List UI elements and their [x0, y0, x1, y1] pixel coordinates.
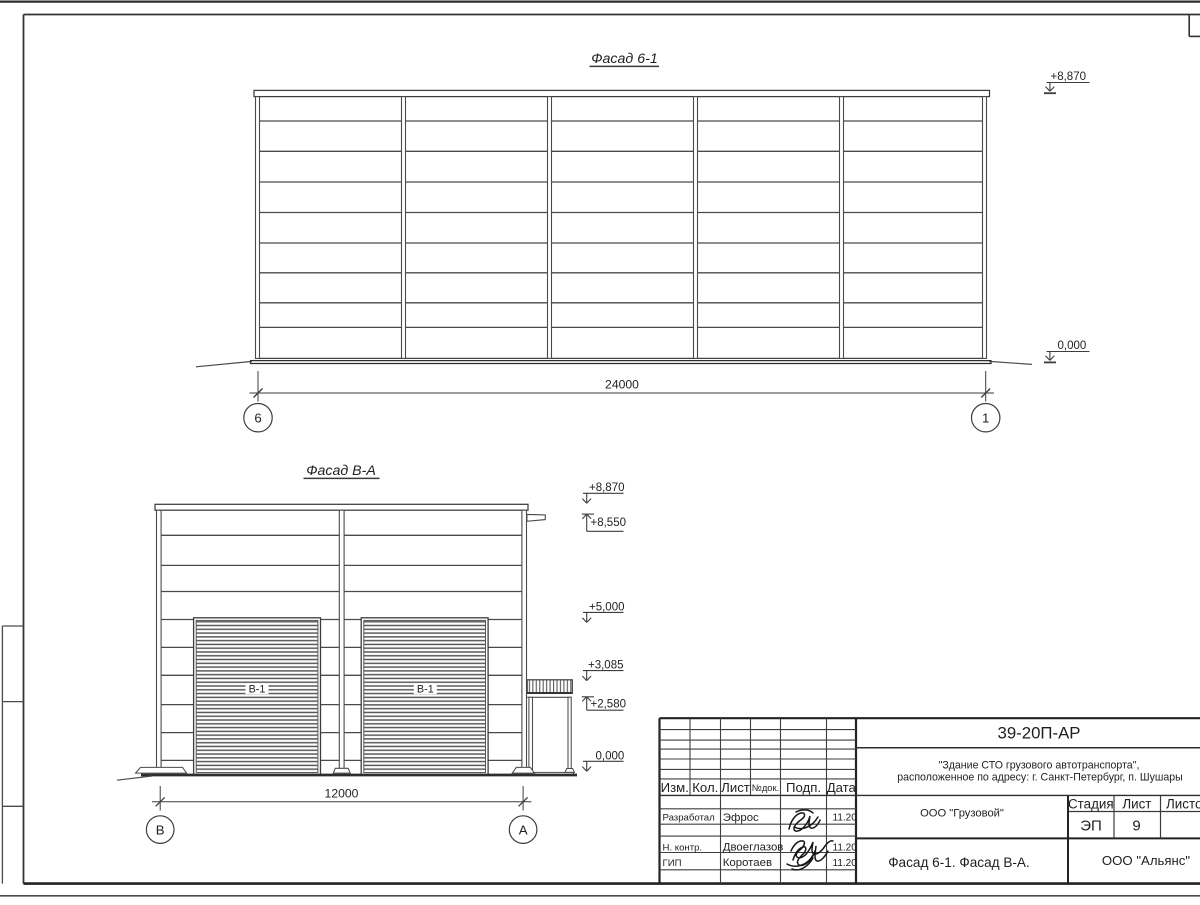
svg-text:Коротаев: Коротаев [723, 857, 772, 869]
svg-text:А: А [519, 822, 528, 837]
svg-text:№док.: №док. [752, 782, 779, 793]
svg-text:Дата: Дата [827, 780, 857, 795]
svg-text:11.20: 11.20 [833, 813, 858, 824]
svg-text:0,000: 0,000 [596, 750, 625, 762]
svg-text:39-20П-АР: 39-20П-АР [998, 723, 1081, 742]
svg-text:0,000: 0,000 [1058, 340, 1087, 352]
svg-text:Лист: Лист [721, 780, 750, 795]
svg-text:Лист: Лист [1122, 797, 1151, 812]
svg-text:24000: 24000 [605, 377, 639, 391]
svg-text:Фасад 6-1. Фасад В-А.: Фасад 6-1. Фасад В-А. [888, 855, 1030, 870]
svg-text:ГИП: ГИП [663, 858, 682, 869]
svg-text:расположенное по адресу: г. Са: расположенное по адресу: г. Санкт-Петерб… [897, 772, 1183, 784]
svg-text:ЭП: ЭП [1080, 818, 1102, 835]
svg-text:12000: 12000 [325, 786, 359, 800]
svg-text:Н. контр.: Н. контр. [663, 842, 703, 853]
svg-text:11.20: 11.20 [833, 858, 858, 869]
svg-text:+8,870: +8,870 [1051, 71, 1087, 83]
svg-text:"Здание СТО грузового автотран: "Здание СТО грузового автотранспорта", [939, 759, 1140, 771]
svg-text:ООО "Грузовой": ООО "Грузовой" [920, 808, 1004, 820]
svg-text:9: 9 [1132, 818, 1140, 835]
svg-text:Фасад 6-1: Фасад 6-1 [591, 51, 657, 67]
svg-text:11.20: 11.20 [833, 842, 858, 853]
svg-text:Листов: Листов [1166, 797, 1200, 812]
svg-text:Фасад В-А: Фасад В-А [306, 463, 376, 479]
svg-text:Эфрос: Эфрос [723, 812, 759, 824]
svg-text:+8,550: +8,550 [591, 517, 627, 529]
svg-text:Изм.: Изм. [661, 780, 689, 795]
svg-text:Стадия: Стадия [1068, 797, 1114, 812]
svg-text:ООО "Альянс": ООО "Альянс" [1102, 853, 1190, 868]
svg-text:1: 1 [982, 410, 989, 425]
svg-text:+2,580: +2,580 [591, 698, 627, 710]
svg-text:В-1: В-1 [249, 683, 266, 695]
svg-text:Двоеглазов: Двоеглазов [723, 842, 784, 854]
svg-text:В: В [156, 822, 165, 837]
svg-text:В-1: В-1 [417, 683, 434, 695]
svg-text:+8,870: +8,870 [589, 482, 625, 494]
svg-text:6: 6 [254, 410, 261, 425]
svg-text:+3,085: +3,085 [588, 660, 624, 672]
svg-text:Подп.: Подп. [786, 780, 821, 795]
svg-text:+5,000: +5,000 [589, 601, 625, 613]
svg-text:Кол.: Кол. [692, 780, 718, 795]
svg-text:Разработал: Разработал [663, 813, 715, 824]
